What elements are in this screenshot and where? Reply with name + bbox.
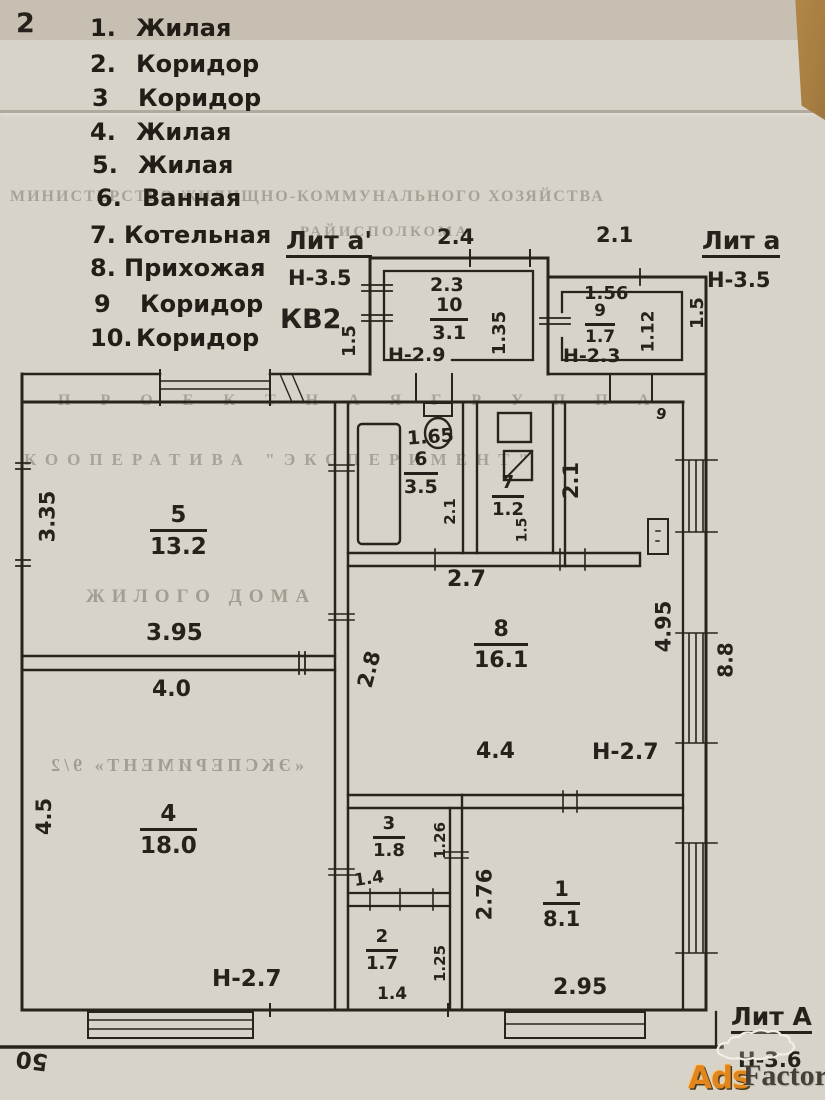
litera-a1-height: Н-3.5 bbox=[288, 268, 352, 289]
scanned-floorplan-photo: { "page": { "corner_mark": "2" }, "legen… bbox=[0, 0, 825, 1100]
room6-dim-side: 2.1 bbox=[443, 498, 458, 525]
litera-a1-title: Лит а' bbox=[286, 228, 372, 258]
legend-item-10: 10.Коридор bbox=[90, 324, 259, 352]
room7-label: 71.2 bbox=[492, 474, 524, 520]
room10-label: 103.1 bbox=[430, 296, 468, 344]
room6-dim-top: 1.65 bbox=[406, 426, 454, 448]
dim-50: 50 bbox=[15, 1046, 50, 1073]
room3-dim-bottom: 1.4 bbox=[353, 869, 385, 890]
room10-height: Н-2.9 bbox=[388, 346, 445, 365]
room8-height: Н-2.7 bbox=[592, 742, 659, 764]
dim-lita-1-5: 1.5 bbox=[689, 297, 707, 329]
room8-dim-bottom: 4.4 bbox=[476, 741, 515, 763]
room4-height: Н-2.7 bbox=[212, 968, 282, 991]
room1-dim-bottom: 2.95 bbox=[553, 977, 607, 999]
legend-item-8: 8.Прихожая bbox=[90, 254, 266, 282]
room3-dim-side: 1.26 bbox=[433, 822, 448, 859]
room5-dim-bottom: 3.95 bbox=[146, 622, 203, 645]
legend-item-7: 7.Котельная bbox=[90, 221, 271, 249]
room1-dim-left: 2.76 bbox=[474, 869, 495, 921]
litera-a-height: Н-3.5 bbox=[707, 270, 771, 291]
room1-label: 18.1 bbox=[543, 878, 580, 930]
room10-dim-top: 2.3 bbox=[430, 276, 464, 295]
room6-label: 63.5 bbox=[404, 450, 438, 498]
room9-label: 91.7 bbox=[585, 303, 615, 347]
watermark-ads-text: Ads bbox=[688, 1060, 750, 1096]
corner-mark: 2 bbox=[16, 10, 35, 37]
legend-item-6: 6.Ванная bbox=[96, 184, 241, 212]
room4-dim-top: 4.0 bbox=[152, 679, 191, 701]
dim-kv-1-5: 1.5 bbox=[341, 325, 359, 357]
room5-label: 513.2 bbox=[150, 503, 207, 559]
room5-dim-left: 3.35 bbox=[37, 491, 58, 543]
room8-label: 816.1 bbox=[474, 618, 528, 672]
room10-dim-side: 1.35 bbox=[491, 311, 509, 355]
apartment-label: КВ2 bbox=[280, 306, 341, 333]
room2-label: 21.7 bbox=[366, 928, 398, 974]
legend-item-1: 1.Жилая bbox=[90, 14, 231, 42]
room3-label: 31.8 bbox=[373, 815, 405, 861]
litera-a-title: Лит а bbox=[702, 228, 780, 258]
room9-height: Н-2.3 bbox=[563, 347, 620, 366]
room9-dim-top: 1.56 bbox=[584, 285, 628, 303]
legend-item-5: 5.Жилая bbox=[92, 151, 233, 179]
legend-item-3: 3Коридор bbox=[92, 84, 261, 112]
dim-top-2-4: 2.4 bbox=[437, 227, 474, 248]
legend-item-2: 2.Коридор bbox=[90, 50, 259, 78]
room7-dim-side: 1.5 bbox=[515, 518, 529, 543]
dim-top-2-1: 2.1 bbox=[596, 225, 633, 246]
dim-2-7: 2.7 bbox=[447, 569, 486, 591]
room4-dim-left: 4.5 bbox=[34, 798, 55, 835]
legend-item-9: 9Коридор bbox=[94, 290, 263, 318]
room8-dim-right: 4.95 bbox=[653, 601, 674, 653]
watermark-factory-text: Factory bbox=[743, 1059, 825, 1093]
room9-dim-side: 1.12 bbox=[640, 311, 657, 353]
adsfactory-watermark: AdsFactory bbox=[686, 1026, 825, 1100]
room2-dim-bottom: 1.4 bbox=[377, 986, 407, 1003]
room4-label: 418.0 bbox=[140, 802, 197, 858]
dim-vert-2-1: 2.1 bbox=[561, 462, 582, 499]
legend-item-4: 4.Жилая bbox=[90, 118, 231, 146]
room2-dim-side: 1.25 bbox=[433, 945, 448, 982]
dim-right-8-8: 8.8 bbox=[716, 642, 736, 677]
